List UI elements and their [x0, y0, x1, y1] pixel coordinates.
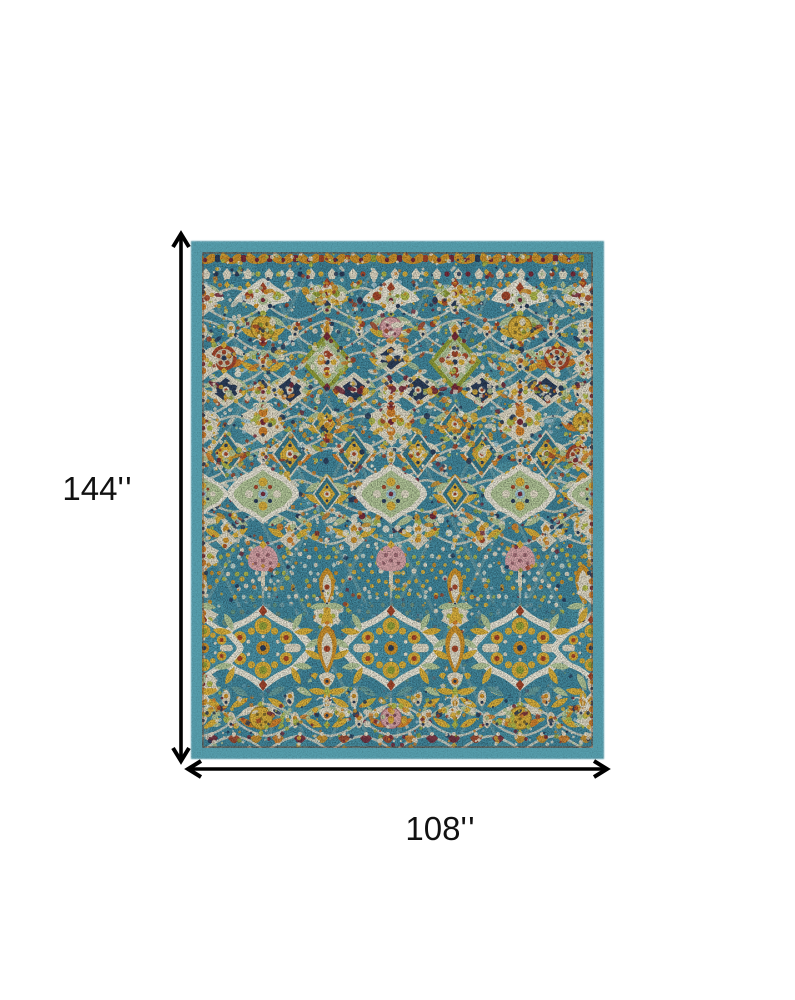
svg-text:144'': 144'' [62, 470, 131, 507]
svg-text:108'': 108'' [405, 810, 474, 847]
